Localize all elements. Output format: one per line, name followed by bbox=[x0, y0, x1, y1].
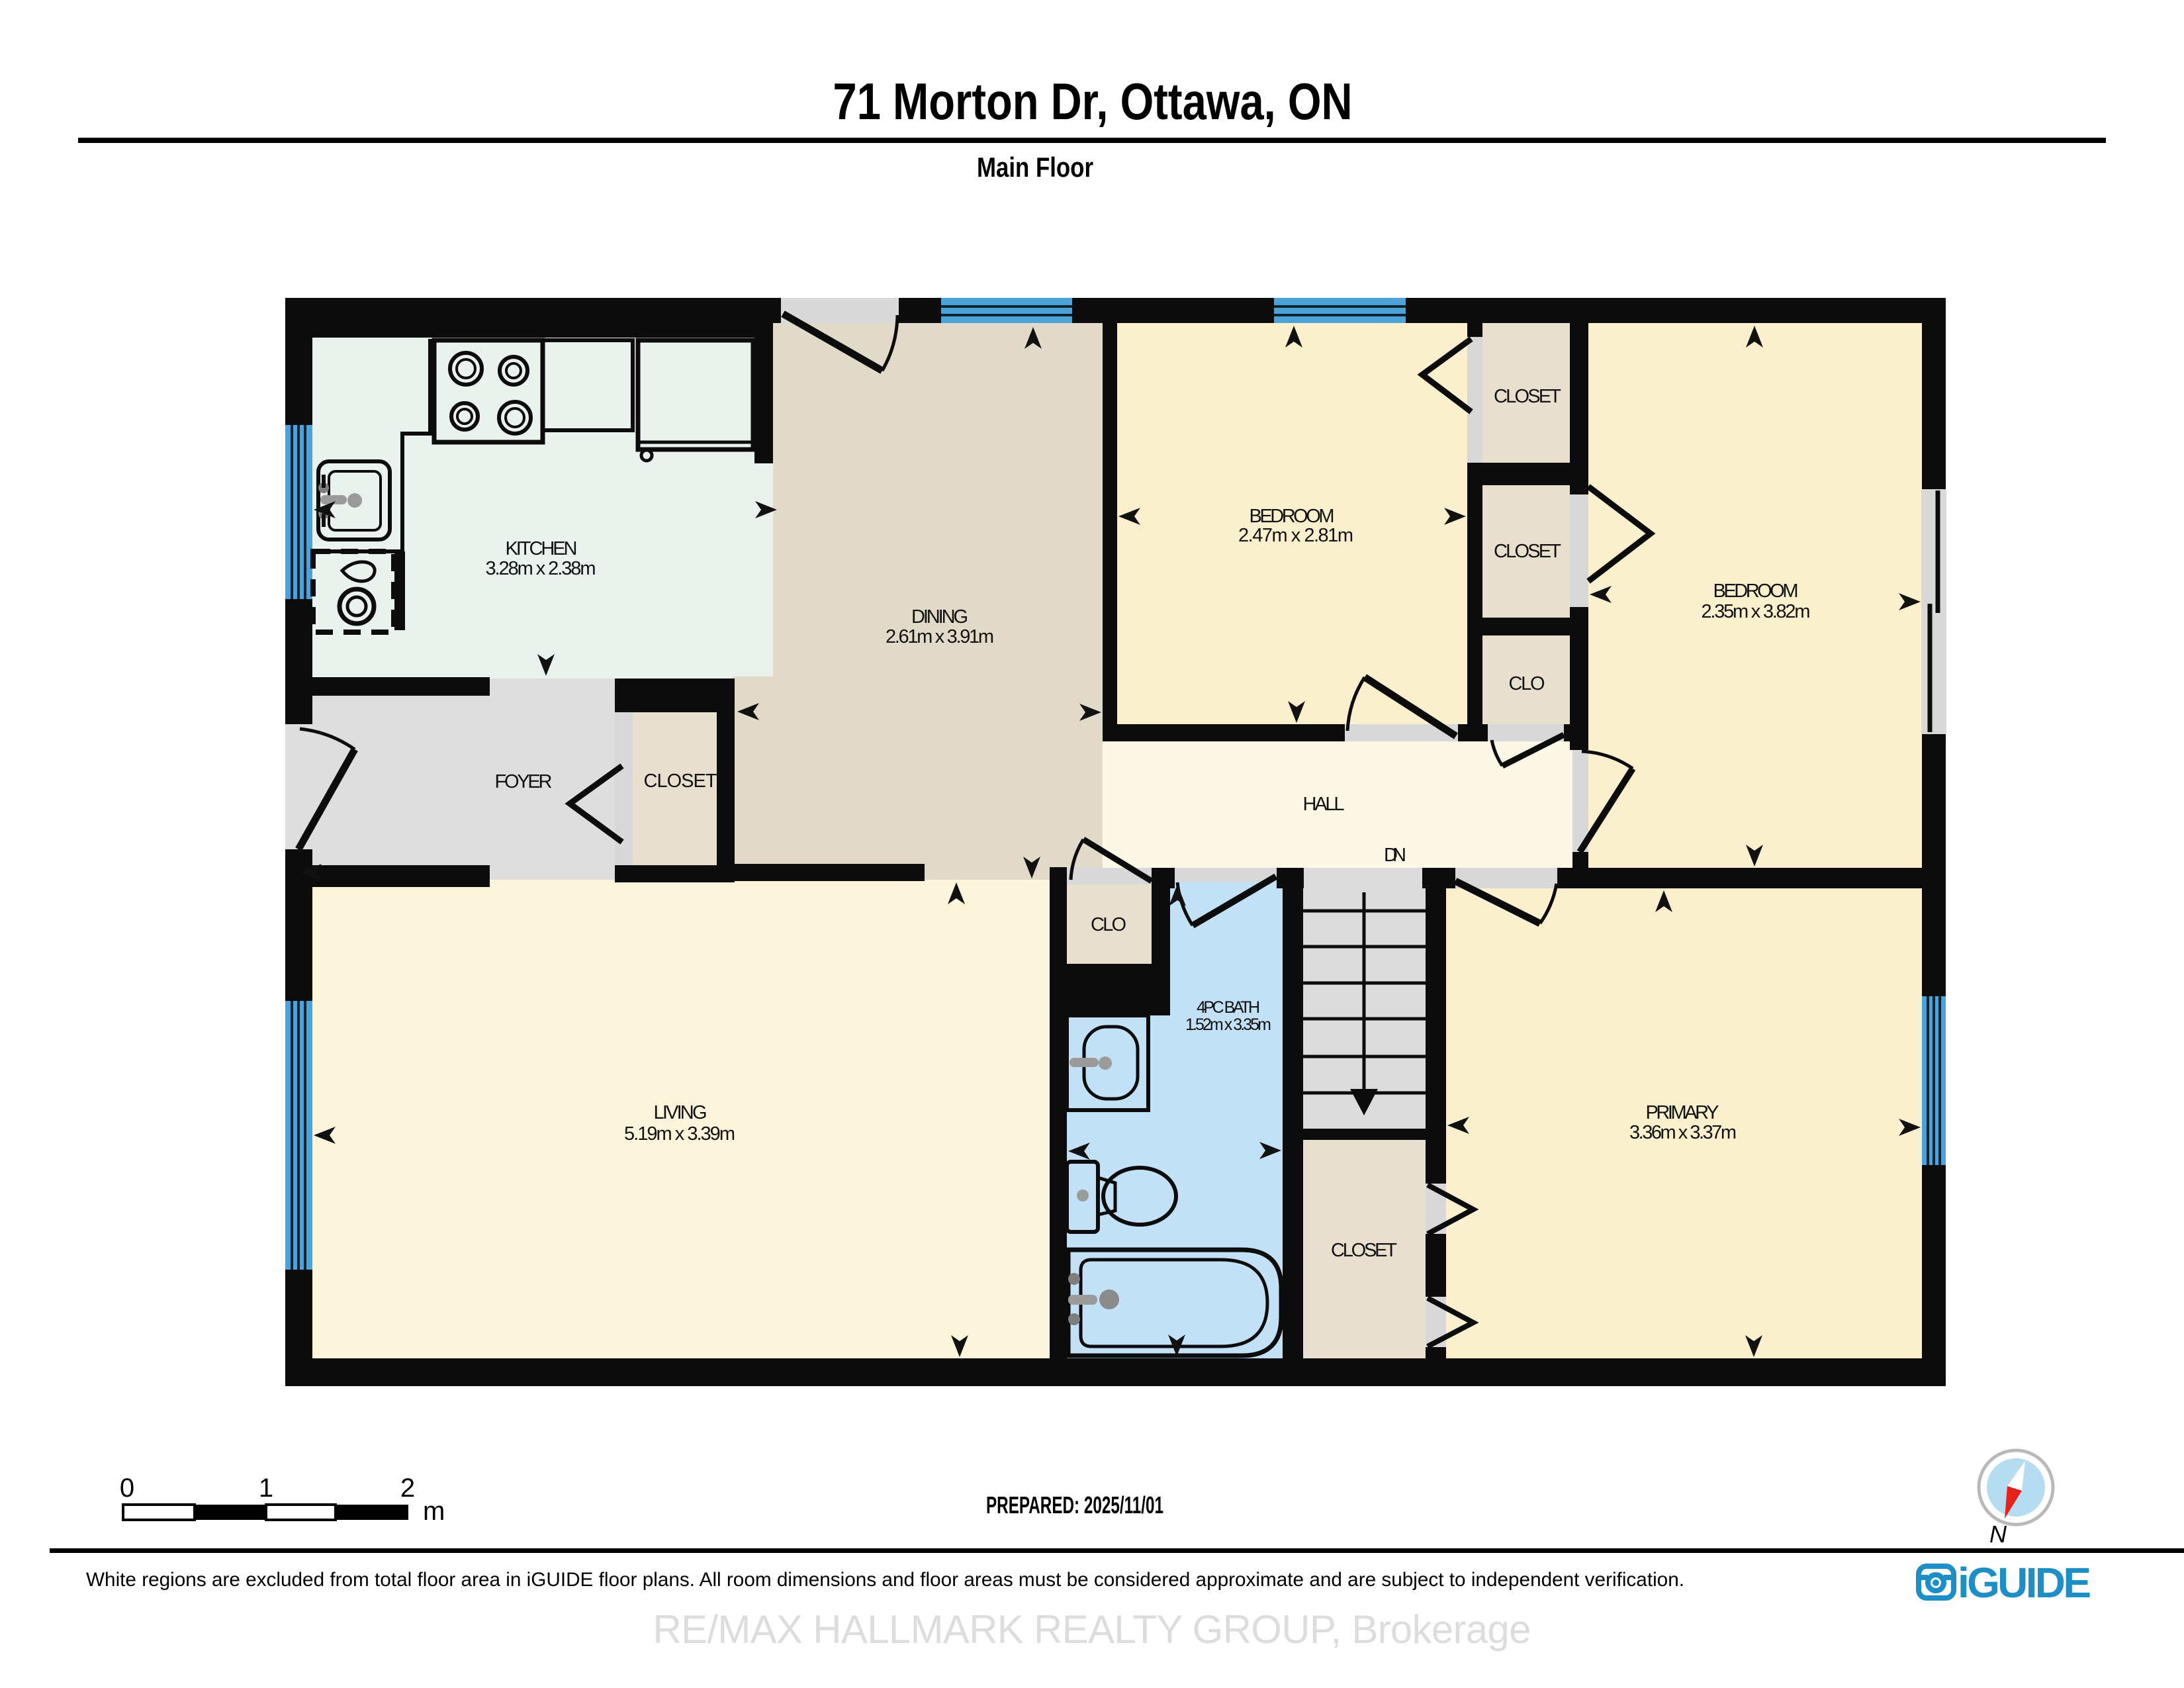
svg-text:2.47m x 2.81m: 2.47m x 2.81m bbox=[1238, 525, 1353, 546]
svg-text:CLO: CLO bbox=[1509, 673, 1545, 694]
svg-text:CLOSET: CLOSET bbox=[1494, 541, 1561, 562]
svg-text:m: m bbox=[423, 1497, 445, 1526]
svg-text:4PC BATH: 4PC BATH bbox=[1197, 998, 1260, 1017]
svg-text:CLO: CLO bbox=[1091, 914, 1126, 935]
svg-text:PRIMARY: PRIMARY bbox=[1646, 1102, 1719, 1123]
svg-text:LIVING: LIVING bbox=[654, 1102, 707, 1123]
svg-text:DINING: DINING bbox=[911, 606, 968, 628]
svg-text:White regions are excluded fro: White regions are excluded from total fl… bbox=[86, 1569, 1684, 1591]
svg-text:1: 1 bbox=[259, 1474, 273, 1503]
svg-text:CLOSET: CLOSET bbox=[1494, 386, 1561, 407]
svg-text:3.36m x 3.37m: 3.36m x 3.37m bbox=[1629, 1122, 1737, 1143]
svg-text:CLOSET: CLOSET bbox=[1331, 1240, 1397, 1261]
svg-text:BEDROOM: BEDROOM bbox=[1250, 506, 1335, 527]
svg-text:Main Floor: Main Floor bbox=[977, 152, 1093, 183]
svg-text:DN: DN bbox=[1384, 845, 1406, 866]
svg-text:3.28m x 2.38m: 3.28m x 2.38m bbox=[486, 558, 596, 579]
svg-text:5.19m x 3.39m: 5.19m x 3.39m bbox=[624, 1123, 735, 1145]
svg-text:KITCHEN: KITCHEN bbox=[506, 538, 578, 559]
svg-text:FOYER: FOYER bbox=[495, 771, 553, 792]
svg-text:iGUIDE: iGUIDE bbox=[1958, 1559, 2091, 1607]
svg-text:PREPARED: 2025/11/01: PREPARED: 2025/11/01 bbox=[986, 1491, 1163, 1519]
svg-text:N: N bbox=[1989, 1521, 2007, 1548]
svg-text:2.61m x 3.91m: 2.61m x 3.91m bbox=[886, 626, 994, 647]
svg-text:2.35m x 3.82m: 2.35m x 3.82m bbox=[1702, 601, 1811, 622]
svg-text:71 Morton Dr, Ottawa, ON: 71 Morton Dr, Ottawa, ON bbox=[833, 72, 1353, 130]
svg-text:RE/MAX HALLMARK REALTY GROUP,: RE/MAX HALLMARK REALTY GROUP, Brokerage bbox=[653, 1607, 1531, 1652]
svg-text:0: 0 bbox=[120, 1474, 134, 1503]
svg-text:HALL: HALL bbox=[1303, 794, 1345, 815]
svg-text:2: 2 bbox=[400, 1474, 415, 1503]
svg-text:BEDROOM: BEDROOM bbox=[1713, 581, 1799, 602]
svg-text:CLOSET: CLOSET bbox=[644, 771, 717, 792]
svg-text:1.52m x 3.35m: 1.52m x 3.35m bbox=[1185, 1015, 1271, 1034]
